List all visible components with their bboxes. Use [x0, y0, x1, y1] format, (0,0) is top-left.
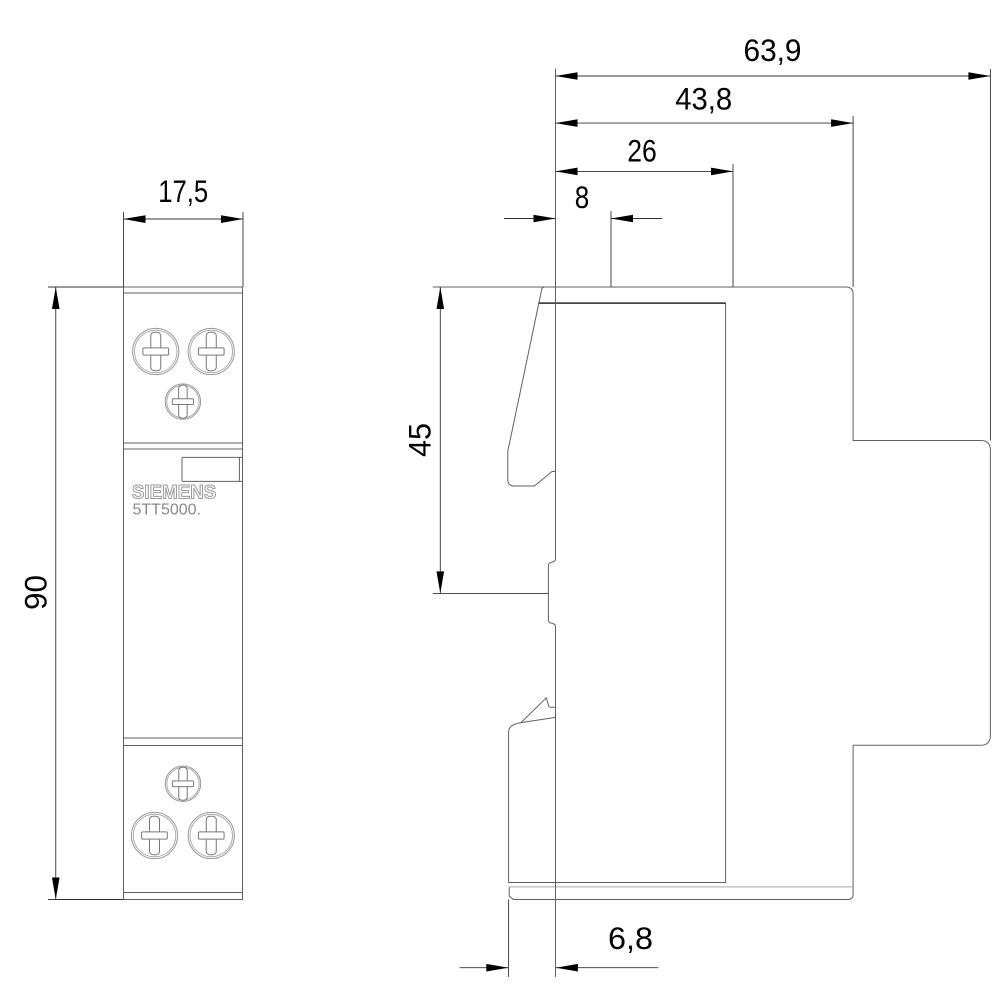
svg-text:5TT5000.: 5TT5000.	[133, 502, 202, 519]
svg-text:8: 8	[575, 179, 590, 215]
svg-text:90: 90	[18, 575, 54, 610]
svg-text:SIEMENS: SIEMENS	[132, 483, 216, 504]
svg-text:45: 45	[402, 423, 438, 457]
svg-text:17,5: 17,5	[158, 173, 208, 209]
svg-text:6,8: 6,8	[608, 920, 653, 956]
svg-text:63,9: 63,9	[744, 32, 802, 68]
svg-text:43,8: 43,8	[675, 81, 732, 117]
svg-text:26: 26	[627, 133, 657, 169]
